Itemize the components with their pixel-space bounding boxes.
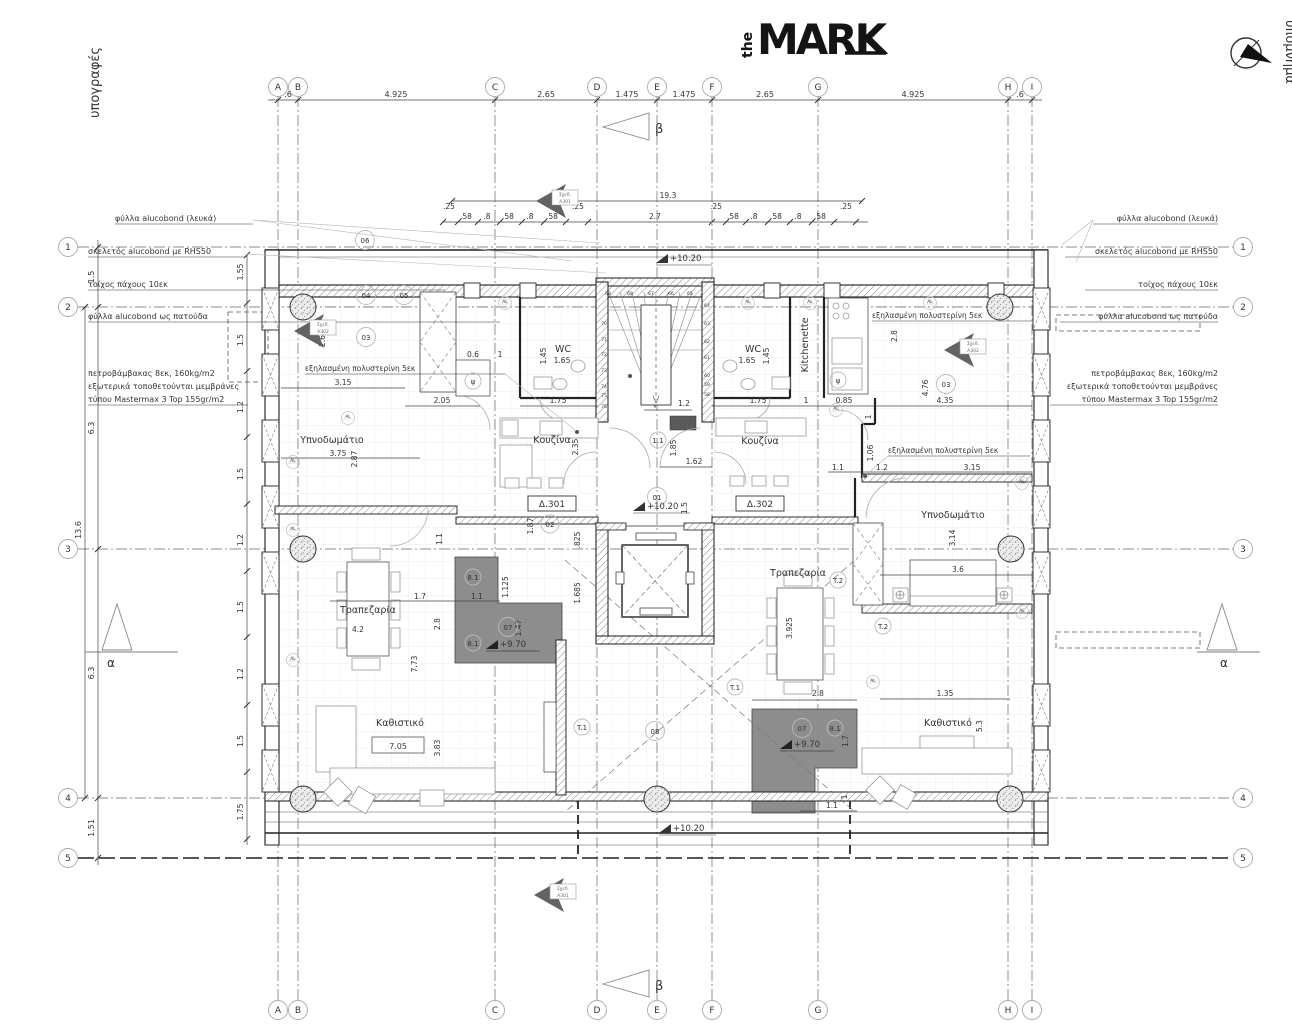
tag-01: 01 <box>653 494 662 502</box>
dim-1a: 1 <box>498 350 503 359</box>
tread-number: 63 <box>704 321 710 327</box>
section-beta-bottom: β <box>655 979 663 994</box>
dim-11d: 1.1 <box>826 801 838 810</box>
grid-col-a-bottom: A <box>275 1006 282 1016</box>
dim-28-right: 2.8 <box>812 689 824 698</box>
grid-col-c: C <box>492 83 498 93</box>
ref-arrow-bottom: Σχεδ. A301 <box>534 878 576 912</box>
grid-row-5: 5 <box>65 854 71 864</box>
tread-number: 71 <box>601 337 607 343</box>
dim-seq: .58 <box>460 212 472 221</box>
tread-number: 75 <box>601 393 607 399</box>
note-alucobond-sill: φύλλα alucobond ως πατούδα <box>88 311 208 321</box>
dim-42: 4.2 <box>352 625 364 634</box>
tag-psi-right: ψ <box>836 377 841 385</box>
note-polystyrene-left: εξηλασμένη πολυστερίνη 5εκ <box>305 364 416 373</box>
note-alucobond-white: φύλλα alucobond (λευκά) <box>115 213 216 223</box>
margin-right-label: υπόμνημα <box>1282 20 1292 84</box>
row-dim: 6.3 <box>87 667 96 680</box>
ref-sched-label: Σχεδ. <box>557 886 569 892</box>
tag-08: 08 <box>651 728 660 736</box>
grid-col-e: E <box>654 83 660 93</box>
ref-sched-label: Σχεδ. <box>317 322 329 328</box>
ref-a301-label: A301 <box>557 893 569 899</box>
note-alucobond-sill-r: φύλλα alucobond ως πατούδα <box>1098 311 1218 321</box>
tag-02: 02 <box>546 521 555 529</box>
dim-bedroomL-h: 2.87 <box>350 450 359 467</box>
room-kitchenette: Kitchenette <box>800 317 811 372</box>
tread-number: 76 <box>601 404 607 410</box>
ref-a302-label: A302 <box>967 348 979 354</box>
tag-81c: 8.1 <box>829 725 840 733</box>
tag-81b: 8.1 <box>467 640 478 648</box>
room-kitchen-left: Κουζίνα <box>533 435 571 446</box>
logo-mark: MARK <box>757 15 889 64</box>
tag-07-left: 07 <box>504 624 513 632</box>
wall-dim: 1.5 <box>236 334 245 346</box>
dim-seq: .8 <box>483 212 490 221</box>
grid-row-4-right: 4 <box>1240 794 1246 804</box>
annotations-right: φύλλα alucobond (λευκά) σκελετός alucobo… <box>1050 213 1218 405</box>
col-dim: 2.65 <box>756 90 774 99</box>
room-wc-right: WC <box>745 344 761 355</box>
dim-wcR-w: 1.65 <box>739 356 756 365</box>
note-skeleton-r: σκελετός alucobond με RHS50 <box>1095 246 1218 256</box>
secondary-dimensions: 19.3 2.7 .25 .58 .8 .58 .8 .58 .25 .25 .… <box>443 191 852 221</box>
unit-label-left: Δ.301 <box>539 500 565 510</box>
grid-col-g-bottom: G <box>815 1006 822 1016</box>
floor-plan-drawing: 69 68 67 66 65 70 71 72 73 74 75 76 64 6… <box>0 0 1292 1031</box>
grid-row-2-right: 2 <box>1240 303 1246 313</box>
tag-06: 06 <box>361 237 370 245</box>
dim-162: 1.62 <box>686 457 703 466</box>
dim-seq: .58 <box>502 212 514 221</box>
dim-476: 4.76 <box>921 379 930 396</box>
dim-1d: 1 <box>840 794 849 799</box>
grid-col-i: I <box>1031 83 1034 93</box>
grid-col-f: F <box>709 83 714 93</box>
stair-core <box>596 278 714 430</box>
note-rockwool: πετροβάμβακας 8εκ, 160kg/m2 <box>88 369 215 378</box>
note-membranes-r: εξωτερικά τοποθετούνται μεμβράνες <box>1067 381 1218 391</box>
section-beta-top: β <box>655 122 663 137</box>
note-wall10: τοίχος πάχους 10εκ <box>88 280 168 289</box>
grid-col-d-bottom: D <box>594 1006 601 1016</box>
ref-a301-label: A301 <box>559 199 571 205</box>
col-dim: 4.925 <box>902 90 925 99</box>
dim-773: 7.73 <box>410 655 419 672</box>
dim-12a: 1.2 <box>876 463 888 472</box>
section-alpha-right: α <box>1220 656 1228 670</box>
tag-81a: 8.1 <box>467 574 478 582</box>
level-hall: +10.20 <box>647 502 678 512</box>
dim-seq: .8 <box>526 212 533 221</box>
note-membranes: εξωτερικά τοποθετούνται μεμβράνες <box>88 381 239 391</box>
unit-label-right: Δ.302 <box>747 500 773 510</box>
grid-row-5-right: 5 <box>1240 854 1246 864</box>
grid-col-d: D <box>594 83 601 93</box>
dim-kitchenL-h: 2.35 <box>571 438 580 455</box>
dim-1125: 1.125 <box>501 576 510 598</box>
dim-wcL-h: 1.45 <box>539 347 548 364</box>
dim-187: 1.87 <box>526 517 535 534</box>
dim-seq: .8 <box>794 212 801 221</box>
grid-row-2: 2 <box>65 303 71 313</box>
dim-185: 1.85 <box>669 439 678 456</box>
grid-col-b: B <box>295 83 301 93</box>
wall-dim: 1.2 <box>236 668 245 680</box>
dim-28-kitchenette: 2.8 <box>890 330 899 342</box>
dim-seq: .58 <box>727 212 739 221</box>
dim-wcL-w: 1.65 <box>554 356 571 365</box>
room-bedroom-left: Υπνοδωμάτιο <box>299 435 364 446</box>
dim-36: 3.6 <box>952 565 964 574</box>
level-top: +10.20 <box>670 254 701 264</box>
tag-t1a: T.1 <box>576 724 587 732</box>
col-dim: .6 <box>1016 90 1024 99</box>
dim-06: 0.6 <box>467 350 479 359</box>
dim-383: 3.83 <box>433 739 442 756</box>
tag-11: 1.1 <box>652 437 663 445</box>
dim-314: 3.14 <box>948 529 957 546</box>
tread-number: 70 <box>601 321 607 327</box>
dim-seq: .8 <box>750 212 757 221</box>
dim-825: .825 <box>573 531 582 548</box>
grid-row-1: 1 <box>65 243 71 253</box>
dim-1685: 1.685 <box>573 582 582 604</box>
ref-sched-label: Σχεδ. <box>967 341 979 347</box>
tread-number: 72 <box>601 352 607 358</box>
grid-row-3: 3 <box>65 545 71 555</box>
dim-15: 1.5 <box>680 502 689 514</box>
tread-number: 67 <box>648 291 654 297</box>
room-bedroom-right: Υπνοδωμάτιο <box>920 510 985 521</box>
note-alucobond-white-r: φύλλα alucobond (λευκά) <box>1117 213 1218 223</box>
room-dining-right: Τραπεζαρία <box>769 568 826 579</box>
col-dim: 2.65 <box>537 90 555 99</box>
note-mastermax: τύπου Mastermax 3 Top 155gr/m2 <box>88 394 224 404</box>
dim-106: 1.06 <box>866 444 875 461</box>
note-polystyrene-right-mid: εξηλασμένη πολυστερίνη 5εκ <box>888 446 999 455</box>
dim-315-right: 3.15 <box>964 463 981 472</box>
tread-number: 69 <box>605 291 611 297</box>
dim-1c: 1 <box>864 414 873 419</box>
tread-number: 65 <box>687 291 693 297</box>
dim-stair-width: 1.2 <box>678 399 690 408</box>
tread-number: 73 <box>601 368 607 374</box>
note-rockwool-r: πετροβάμβακας 8εκ, 160kg/m2 <box>1091 369 1218 378</box>
row-dim: 1.51 <box>87 819 96 837</box>
margin-left-label: υπογραφές <box>88 47 103 118</box>
note-skeleton: σκελετός alucobond με RHS50 <box>88 246 211 256</box>
living-area-value: 7.05 <box>389 742 407 751</box>
wall-dim: 1.75 <box>236 803 245 820</box>
ref-arrow-top: Σχεδ. A301 <box>536 184 578 218</box>
col-dim: .6 <box>284 90 292 99</box>
row-total-dim: 13.6 <box>74 521 83 539</box>
note-mastermax-r: τύπου Mastermax 3 Top 155gr/m2 <box>1082 394 1218 404</box>
dim-bedroomL-w: 3.75 <box>330 449 347 458</box>
tread-number: 58 <box>704 392 710 398</box>
dim-seq: .25 <box>443 202 455 211</box>
tag-03-left: 03 <box>362 334 371 342</box>
dim-147: 1.47 <box>514 619 523 636</box>
dim-seq: .25 <box>840 202 852 211</box>
logo-the: the <box>740 32 756 58</box>
dim-53: 5.3 <box>975 720 984 732</box>
grid-col-c-bottom: C <box>492 1006 498 1016</box>
tag-03-right: 03 <box>942 381 951 389</box>
col-dim: 4.925 <box>385 90 408 99</box>
left-wall-dimensions: 1.55 1.5 1.2 1.5 1.2 1.5 1.2 1.5 1.75 <box>236 263 245 820</box>
grid-col-h: H <box>1005 83 1012 93</box>
floor-plan-sheet: 69 68 67 66 65 70 71 72 73 74 75 76 64 6… <box>0 0 1292 1031</box>
room-living-left: Καθιστικό <box>376 718 424 729</box>
dim-seq: .58 <box>546 212 558 221</box>
grid-col-a: A <box>275 83 282 93</box>
grid-col-e-bottom: E <box>654 1006 660 1016</box>
grid-col-h-bottom: H <box>1005 1006 1012 1016</box>
elevator-shaft <box>596 523 714 644</box>
tread-number: 74 <box>601 384 607 390</box>
room-dining-left: Τραπεζαρία <box>339 605 396 616</box>
grid-row-3-right: 3 <box>1240 545 1246 555</box>
grid-col-g: G <box>815 83 822 93</box>
dim-1b: 1 <box>804 396 809 405</box>
level-terrace-right: +9.70 <box>794 740 820 750</box>
ref-a302-label: A302 <box>317 329 329 335</box>
dim-175-left: 1.75 <box>550 396 567 405</box>
grid-col-f-bottom: F <box>709 1006 714 1016</box>
wall-dim: 1.5 <box>236 601 245 613</box>
tag-07-right: 07 <box>798 725 807 733</box>
tag-psi-left: ψ <box>471 378 476 386</box>
room-kitchen-right: Κουζίνα <box>741 436 779 447</box>
dim-315-left: 3.15 <box>335 378 352 387</box>
tread-number: 68 <box>627 291 633 297</box>
tag-t1b: T.1 <box>729 684 740 692</box>
dim-135: 1.35 <box>937 689 954 698</box>
tread-number: 61 <box>704 355 710 361</box>
dim-11c: 1.1 <box>471 592 483 601</box>
wall-dim: 1.5 <box>236 735 245 747</box>
dim-175-right: 1.75 <box>750 396 767 405</box>
tag-t2a: T.2 <box>832 577 843 585</box>
tread-number: 64 <box>704 303 710 309</box>
tag-04: 04 <box>362 292 371 300</box>
section-alpha-left: α <box>107 656 115 670</box>
wall-dim: 1.5 <box>236 468 245 480</box>
col-dim: 1.475 <box>673 90 696 99</box>
dim-seq: .58 <box>814 212 826 221</box>
room-living-right: Καθιστικό <box>924 718 972 729</box>
dim-mid: 2.7 <box>649 212 661 221</box>
dim-seq: .25 <box>710 202 722 211</box>
tread-number: 59 <box>704 382 710 388</box>
note-polystyrene-right-top: εξηλασμένη πολυστερίνη 5εκ <box>872 311 983 320</box>
dim-11b: 1.1 <box>435 533 444 545</box>
dim-total: 19.3 <box>660 191 677 200</box>
dim-seq: .58 <box>770 212 782 221</box>
grid-col-b-bottom: B <box>295 1006 301 1016</box>
ref-sched-label: Σχεδ. <box>559 192 571 198</box>
dim-wcR-h: 1.45 <box>762 347 771 364</box>
dim-435: 4.35 <box>937 396 954 405</box>
tread-number: 66 <box>668 291 674 297</box>
logo: the MARK <box>740 15 889 64</box>
wall-dim: 1.2 <box>236 534 245 546</box>
tread-number: 60 <box>704 373 710 379</box>
dim-11a: 1.1 <box>832 463 844 472</box>
wall-dim: 1.2 <box>236 401 245 413</box>
dim-17b: 1.7 <box>841 735 850 747</box>
wall-dim: 1.55 <box>236 263 245 280</box>
dim-3925: 3.925 <box>785 617 794 639</box>
col-dim: 1.475 <box>616 90 639 99</box>
dim-17a: 1.7 <box>414 592 426 601</box>
north-arrow-icon <box>1231 38 1272 68</box>
room-wc-left: WC <box>555 344 571 355</box>
row-dim: 6.3 <box>87 422 96 435</box>
note-wall10-r: τοίχος πάχους 10εκ <box>1138 280 1218 289</box>
tag-t2b: T.2 <box>877 623 888 631</box>
level-bottom: +10.20 <box>673 824 704 834</box>
level-terrace-left: +9.70 <box>500 640 526 650</box>
grid-col-i-bottom: I <box>1031 1006 1034 1016</box>
dim-28-left: 2.8 <box>433 618 442 630</box>
tag-05: 05 <box>400 292 409 300</box>
grid-row-4: 4 <box>65 794 71 804</box>
dim-205: 2.05 <box>434 396 451 405</box>
tread-number: 62 <box>704 339 710 345</box>
grid-row-1-right: 1 <box>1240 243 1246 253</box>
